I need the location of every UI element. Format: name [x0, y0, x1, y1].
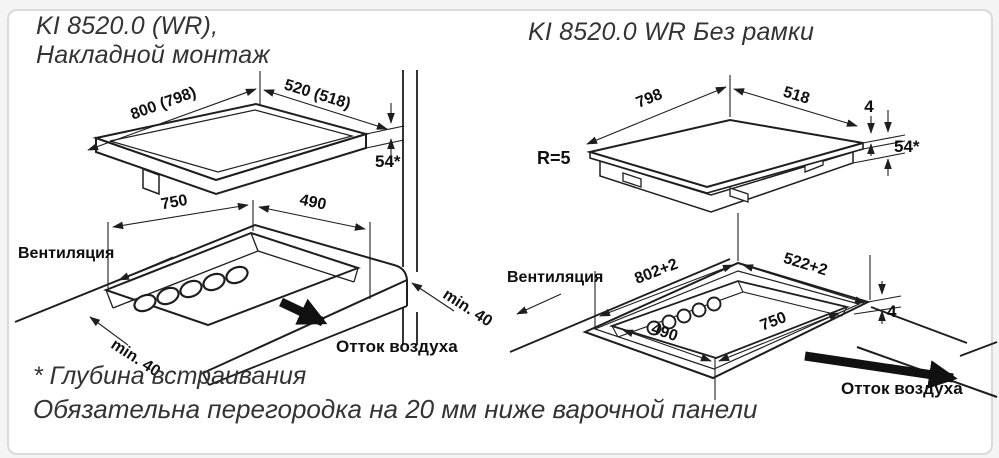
dim-label-cutout-width: 750: [160, 192, 189, 213]
air-outflow-label: Отток воздуха: [841, 379, 963, 398]
dim-label-height: 54*: [375, 152, 401, 171]
air-outflow-arrow-icon: [281, 302, 323, 322]
ventilation-label: Вентиляция: [507, 269, 603, 286]
right-diagram-title: KI 8520.0 WR Без рамки: [528, 18, 814, 47]
footnote-embedding-depth: * Глубина встраивания: [33, 362, 306, 391]
dim-label-step: 4: [887, 302, 897, 321]
air-outflow-label: Отток воздуха: [336, 337, 458, 356]
ventilation-label: Вентиляция: [18, 245, 114, 262]
left-title-line1: KI 8520.0 (WR),: [36, 12, 270, 41]
dim-label-glass-lip: 4: [864, 97, 874, 116]
wall-lines: [403, 70, 417, 345]
air-outflow-arrow-icon: [805, 356, 953, 378]
dim-label-corner-radius: R=5: [537, 148, 571, 168]
dim-label-clearance-wall: min. 40: [440, 286, 496, 330]
dim-label-height: 54*: [894, 137, 920, 156]
footnote-partition-note: Обязательна перегородка на 20 мм ниже ва…: [33, 394, 757, 425]
dim-label-cutout-depth: 522+2: [781, 250, 829, 279]
dim-label-width: 798: [634, 86, 665, 112]
dim-label-cutout-depth: 490: [298, 192, 328, 214]
right-title-text: KI 8520.0 WR Без рамки: [528, 18, 814, 46]
left-installation-diagram: 800 (798) 520 (518) 54* 750 490 min. 40 …: [13, 55, 505, 407]
cooktop-drawing: [590, 120, 863, 212]
